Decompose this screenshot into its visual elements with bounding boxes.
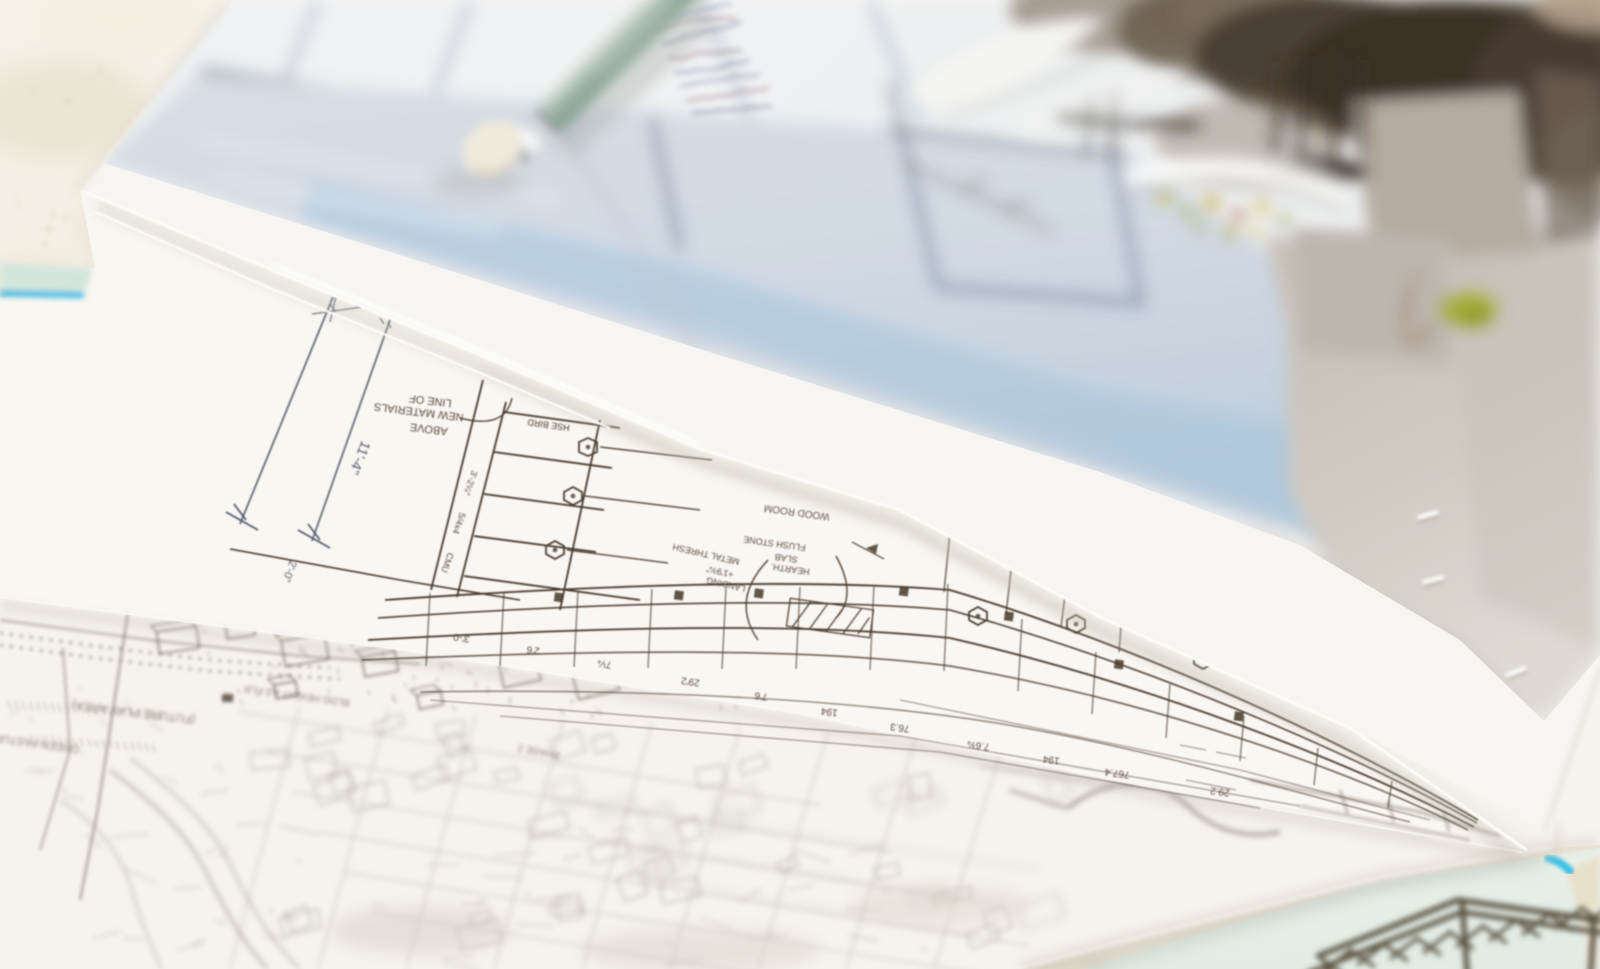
- svg-text:3'-0: 3'-0: [452, 631, 470, 644]
- svg-text:7¼: 7¼: [596, 657, 612, 671]
- svg-text:7'6: 7'6: [754, 689, 769, 702]
- svg-text:2'6: 2'6: [526, 643, 541, 656]
